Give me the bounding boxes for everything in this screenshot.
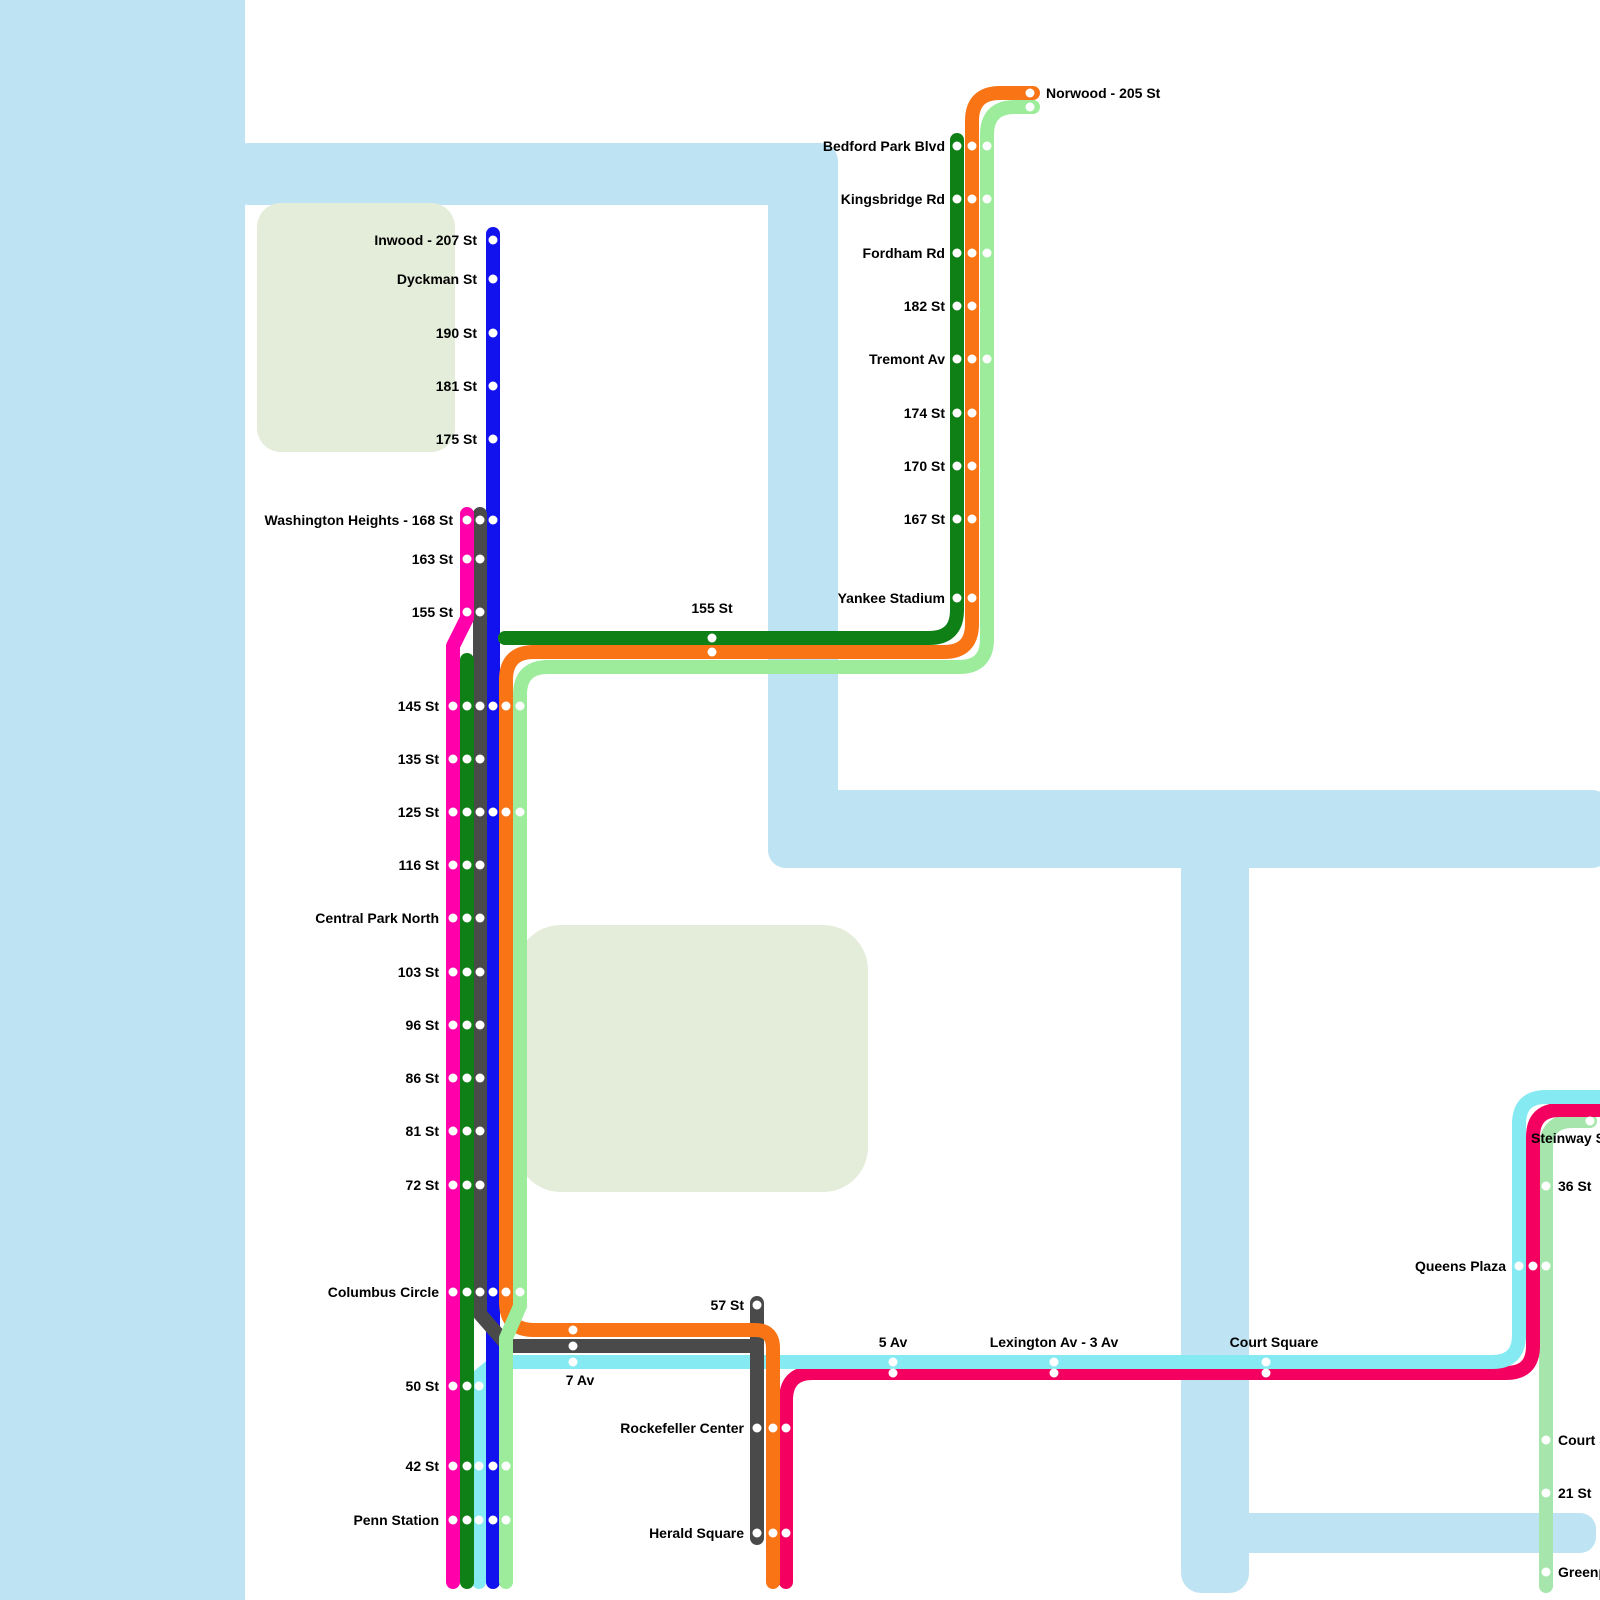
- station-label-175-st: 175 St: [436, 431, 478, 447]
- station-dot-herald-square: [782, 1529, 791, 1538]
- station-dot-tremont-av: [983, 355, 992, 364]
- station-label-182-st: 182 St: [904, 298, 946, 314]
- station-label-washington-heights-168-st: Washington Heights - 168 St: [265, 512, 454, 528]
- station-dot-116-st: [476, 861, 485, 870]
- station-label-7-av: 7 Av: [566, 1372, 595, 1388]
- station-dot-190-st: [489, 329, 498, 338]
- station-dot-herald-square: [753, 1529, 762, 1538]
- station-dot-greenpoint-av: [1542, 1568, 1551, 1577]
- station-dot-103-st: [476, 968, 485, 977]
- station-label-steinway-st: Steinway St: [1531, 1130, 1600, 1146]
- station-dot-fordham-rd: [968, 249, 977, 258]
- station-dot-steinway-st: [1586, 1117, 1595, 1126]
- station-dot-81-st: [449, 1127, 458, 1136]
- station-label-21-st: 21 St: [1558, 1485, 1592, 1501]
- station-dot-50-st: [475, 1382, 484, 1391]
- station-dot-rockefeller-center: [753, 1424, 762, 1433]
- station-dot-washington-heights-168-st: [476, 516, 485, 525]
- station-dot-96-st: [476, 1021, 485, 1030]
- station-dot-145-st: [476, 702, 485, 711]
- station-dot-tremont-av: [953, 355, 962, 364]
- station-dot-72-st: [449, 1181, 458, 1190]
- station-dot-72-st: [476, 1181, 485, 1190]
- station-label-kingsbridge-rd: Kingsbridge Rd: [841, 191, 945, 207]
- station-label-herald-square: Herald Square: [649, 1525, 744, 1541]
- station-dot-bedford-park-blvd: [953, 142, 962, 151]
- station-dot-125-st: [476, 808, 485, 817]
- station-label-court-square: Court Square: [1230, 1334, 1319, 1350]
- station-dot-57-st: [753, 1301, 762, 1310]
- station-dot-96-st: [463, 1021, 472, 1030]
- station-dot-central-park-north: [449, 914, 458, 923]
- station-dot-rockefeller-center: [769, 1424, 778, 1433]
- station-dot-penn-station: [489, 1516, 498, 1525]
- station-dot-columbus-circle: [502, 1288, 511, 1297]
- station-dot-queens-plaza: [1529, 1262, 1538, 1271]
- station-dot-court-square: [1262, 1358, 1271, 1367]
- harlem-river-vertical: [768, 160, 838, 868]
- station-dot-167-st: [968, 515, 977, 524]
- station-dot-125-st: [463, 808, 472, 817]
- station-label-36-st: 36 St: [1558, 1178, 1592, 1194]
- station-dot-125-st: [516, 808, 525, 817]
- station-label-yankee-stadium: Yankee Stadium: [838, 590, 945, 606]
- station-dot-103-st: [463, 968, 472, 977]
- station-dot-163-st: [476, 555, 485, 564]
- station-dot-court-sq: [1542, 1436, 1551, 1445]
- station-dot-penn-station: [502, 1516, 511, 1525]
- station-dot-145-st: [463, 702, 472, 711]
- station-dot-dyckman-st: [489, 275, 498, 284]
- station-label-155-st-washington: 155 St: [412, 604, 454, 620]
- station-label-greenpoint-av: Greenpoint Av: [1558, 1564, 1600, 1580]
- station-dot-182-st: [968, 302, 977, 311]
- newtown-creek: [1215, 1513, 1596, 1553]
- station-dot-21-st: [1542, 1489, 1551, 1498]
- station-label-170-st: 170 St: [904, 458, 946, 474]
- station-label-rockefeller-center: Rockefeller Center: [620, 1420, 744, 1436]
- station-dot-170-st: [968, 462, 977, 471]
- station-dot-155-st-harlem: [708, 648, 717, 657]
- station-dot-penn-station: [475, 1516, 484, 1525]
- station-label-norwood-205-st: Norwood - 205 St: [1046, 85, 1161, 101]
- station-dot-kingsbridge-rd: [968, 195, 977, 204]
- station-label-queens-plaza: Queens Plaza: [1415, 1258, 1506, 1274]
- station-dot-5-av: [889, 1369, 898, 1378]
- station-label-167-st: 167 St: [904, 511, 946, 527]
- station-label-columbus-circle: Columbus Circle: [328, 1284, 439, 1300]
- station-label-86-st: 86 St: [406, 1070, 440, 1086]
- station-label-central-park-north: Central Park North: [315, 910, 439, 926]
- station-label-72-st: 72 St: [406, 1177, 440, 1193]
- station-dot-7-av: [569, 1358, 578, 1367]
- station-dot-181-st: [489, 382, 498, 391]
- station-dot-penn-station: [463, 1516, 472, 1525]
- station-dot-columbus-circle: [476, 1288, 485, 1297]
- station-label-103-st: 103 St: [398, 964, 440, 980]
- station-dot-lexington-av-3-av: [1050, 1358, 1059, 1367]
- east-river-vertical: [1181, 830, 1249, 1593]
- station-dot-86-st: [463, 1074, 472, 1083]
- station-dot-182-st: [953, 302, 962, 311]
- station-dot-rockefeller-center: [782, 1424, 791, 1433]
- station-dot-kingsbridge-rd: [953, 195, 962, 204]
- station-label-125-st: 125 St: [398, 804, 440, 820]
- station-dot-bedford-park-blvd: [968, 142, 977, 151]
- station-dot-135-st: [449, 755, 458, 764]
- station-dot-42-st: [463, 1462, 472, 1471]
- line-dark-green-bronx: [505, 140, 957, 638]
- station-dot-50-st: [463, 1382, 472, 1391]
- station-label-penn-station: Penn Station: [353, 1512, 439, 1528]
- station-dot-7-av: [569, 1342, 578, 1351]
- central-park: [516, 925, 868, 1192]
- station-label-50-st: 50 St: [406, 1378, 440, 1394]
- station-dot-kingsbridge-rd: [983, 195, 992, 204]
- station-label-5-av: 5 Av: [879, 1334, 908, 1350]
- station-dot-163-st: [463, 555, 472, 564]
- station-dot-125-st: [449, 808, 458, 817]
- station-dot-5-av: [889, 1358, 898, 1367]
- station-label-174-st: 174 St: [904, 405, 946, 421]
- station-dot-170-st: [953, 462, 962, 471]
- station-dot-174-st: [953, 409, 962, 418]
- harlem-river-arm: [230, 143, 838, 205]
- transit-map: Norwood - 205 StBedford Park BlvdKingsbr…: [0, 0, 1600, 1600]
- station-dot-penn-station: [449, 1516, 458, 1525]
- station-dot-96-st: [449, 1021, 458, 1030]
- station-dot-7-av: [569, 1326, 578, 1335]
- station-dot-145-st: [502, 702, 511, 711]
- station-dot-columbus-circle: [463, 1288, 472, 1297]
- station-label-163-st: 163 St: [412, 551, 454, 567]
- station-dot-court-square: [1262, 1369, 1271, 1378]
- station-dot-81-st: [476, 1127, 485, 1136]
- station-dot-135-st: [463, 755, 472, 764]
- station-dot-inwood-207-st: [489, 236, 498, 245]
- station-dot-72-st: [463, 1181, 472, 1190]
- station-label-96-st: 96 St: [406, 1017, 440, 1033]
- station-dot-lexington-av-3-av: [1050, 1369, 1059, 1378]
- station-dot-columbus-circle: [449, 1288, 458, 1297]
- station-label-dyckman-st: Dyckman St: [397, 271, 477, 287]
- station-dot-42-st: [475, 1462, 484, 1471]
- station-dot-washington-heights-168-st: [463, 516, 472, 525]
- station-dot-columbus-circle: [516, 1288, 525, 1297]
- station-dot-81-st: [463, 1127, 472, 1136]
- station-label-181-st: 181 St: [436, 378, 478, 394]
- station-dot-bedford-park-blvd: [983, 142, 992, 151]
- station-label-fordham-rd: Fordham Rd: [863, 245, 945, 261]
- station-label-81-st: 81 St: [406, 1123, 440, 1139]
- station-dot-50-st: [449, 1382, 458, 1391]
- station-dot-norwood-205-st: [1026, 103, 1035, 112]
- station-dot-86-st: [449, 1074, 458, 1083]
- station-dot-135-st: [476, 755, 485, 764]
- station-label-court-sq: Court Sq: [1558, 1432, 1600, 1448]
- station-dot-fordham-rd: [953, 249, 962, 258]
- station-label-bedford-park-blvd: Bedford Park Blvd: [823, 138, 945, 154]
- station-dot-42-st: [449, 1462, 458, 1471]
- station-dot-155-st-harlem: [708, 634, 717, 643]
- station-dot-tremont-av: [968, 355, 977, 364]
- station-dot-145-st: [516, 702, 525, 711]
- hudson-river: [0, 0, 245, 1600]
- station-label-155-st-harlem: 155 St: [691, 600, 733, 616]
- station-dot-norwood-205-st: [1026, 89, 1035, 98]
- station-dot-yankee-stadium: [968, 594, 977, 603]
- station-label-135-st: 135 St: [398, 751, 440, 767]
- station-label-57-st: 57 St: [711, 1297, 745, 1313]
- station-dot-167-st: [953, 515, 962, 524]
- station-dot-103-st: [449, 968, 458, 977]
- station-dot-175-st: [489, 435, 498, 444]
- station-dot-queens-plaza: [1542, 1262, 1551, 1271]
- station-dot-155-st-washington: [463, 608, 472, 617]
- station-dot-145-st: [489, 702, 498, 711]
- station-dot-174-st: [968, 409, 977, 418]
- station-dot-washington-heights-168-st: [489, 516, 498, 525]
- station-label-42-st: 42 St: [406, 1458, 440, 1474]
- station-dot-herald-square: [769, 1529, 778, 1538]
- station-label-lexington-av-3-av: Lexington Av - 3 Av: [990, 1334, 1119, 1350]
- station-dot-125-st: [502, 808, 511, 817]
- station-label-tremont-av: Tremont Av: [869, 351, 945, 367]
- station-dot-queens-plaza: [1515, 1262, 1524, 1271]
- station-dot-86-st: [476, 1074, 485, 1083]
- station-dot-central-park-north: [476, 914, 485, 923]
- station-dot-125-st: [489, 808, 498, 817]
- station-dot-42-st: [489, 1462, 498, 1471]
- station-dot-155-st-washington: [476, 608, 485, 617]
- station-dot-columbus-circle: [489, 1288, 498, 1297]
- station-dot-36-st: [1542, 1182, 1551, 1191]
- station-dot-116-st: [463, 861, 472, 870]
- station-dot-116-st: [449, 861, 458, 870]
- station-label-inwood-207-st: Inwood - 207 St: [374, 232, 477, 248]
- station-dot-42-st: [502, 1462, 511, 1471]
- station-label-190-st: 190 St: [436, 325, 478, 341]
- station-label-145-st: 145 St: [398, 698, 440, 714]
- station-dot-yankee-stadium: [953, 594, 962, 603]
- station-dot-fordham-rd: [983, 249, 992, 258]
- transit-map-svg: Norwood - 205 StBedford Park BlvdKingsbr…: [0, 0, 1600, 1600]
- station-label-116-st: 116 St: [399, 857, 440, 873]
- station-dot-central-park-north: [463, 914, 472, 923]
- station-dot-145-st: [449, 702, 458, 711]
